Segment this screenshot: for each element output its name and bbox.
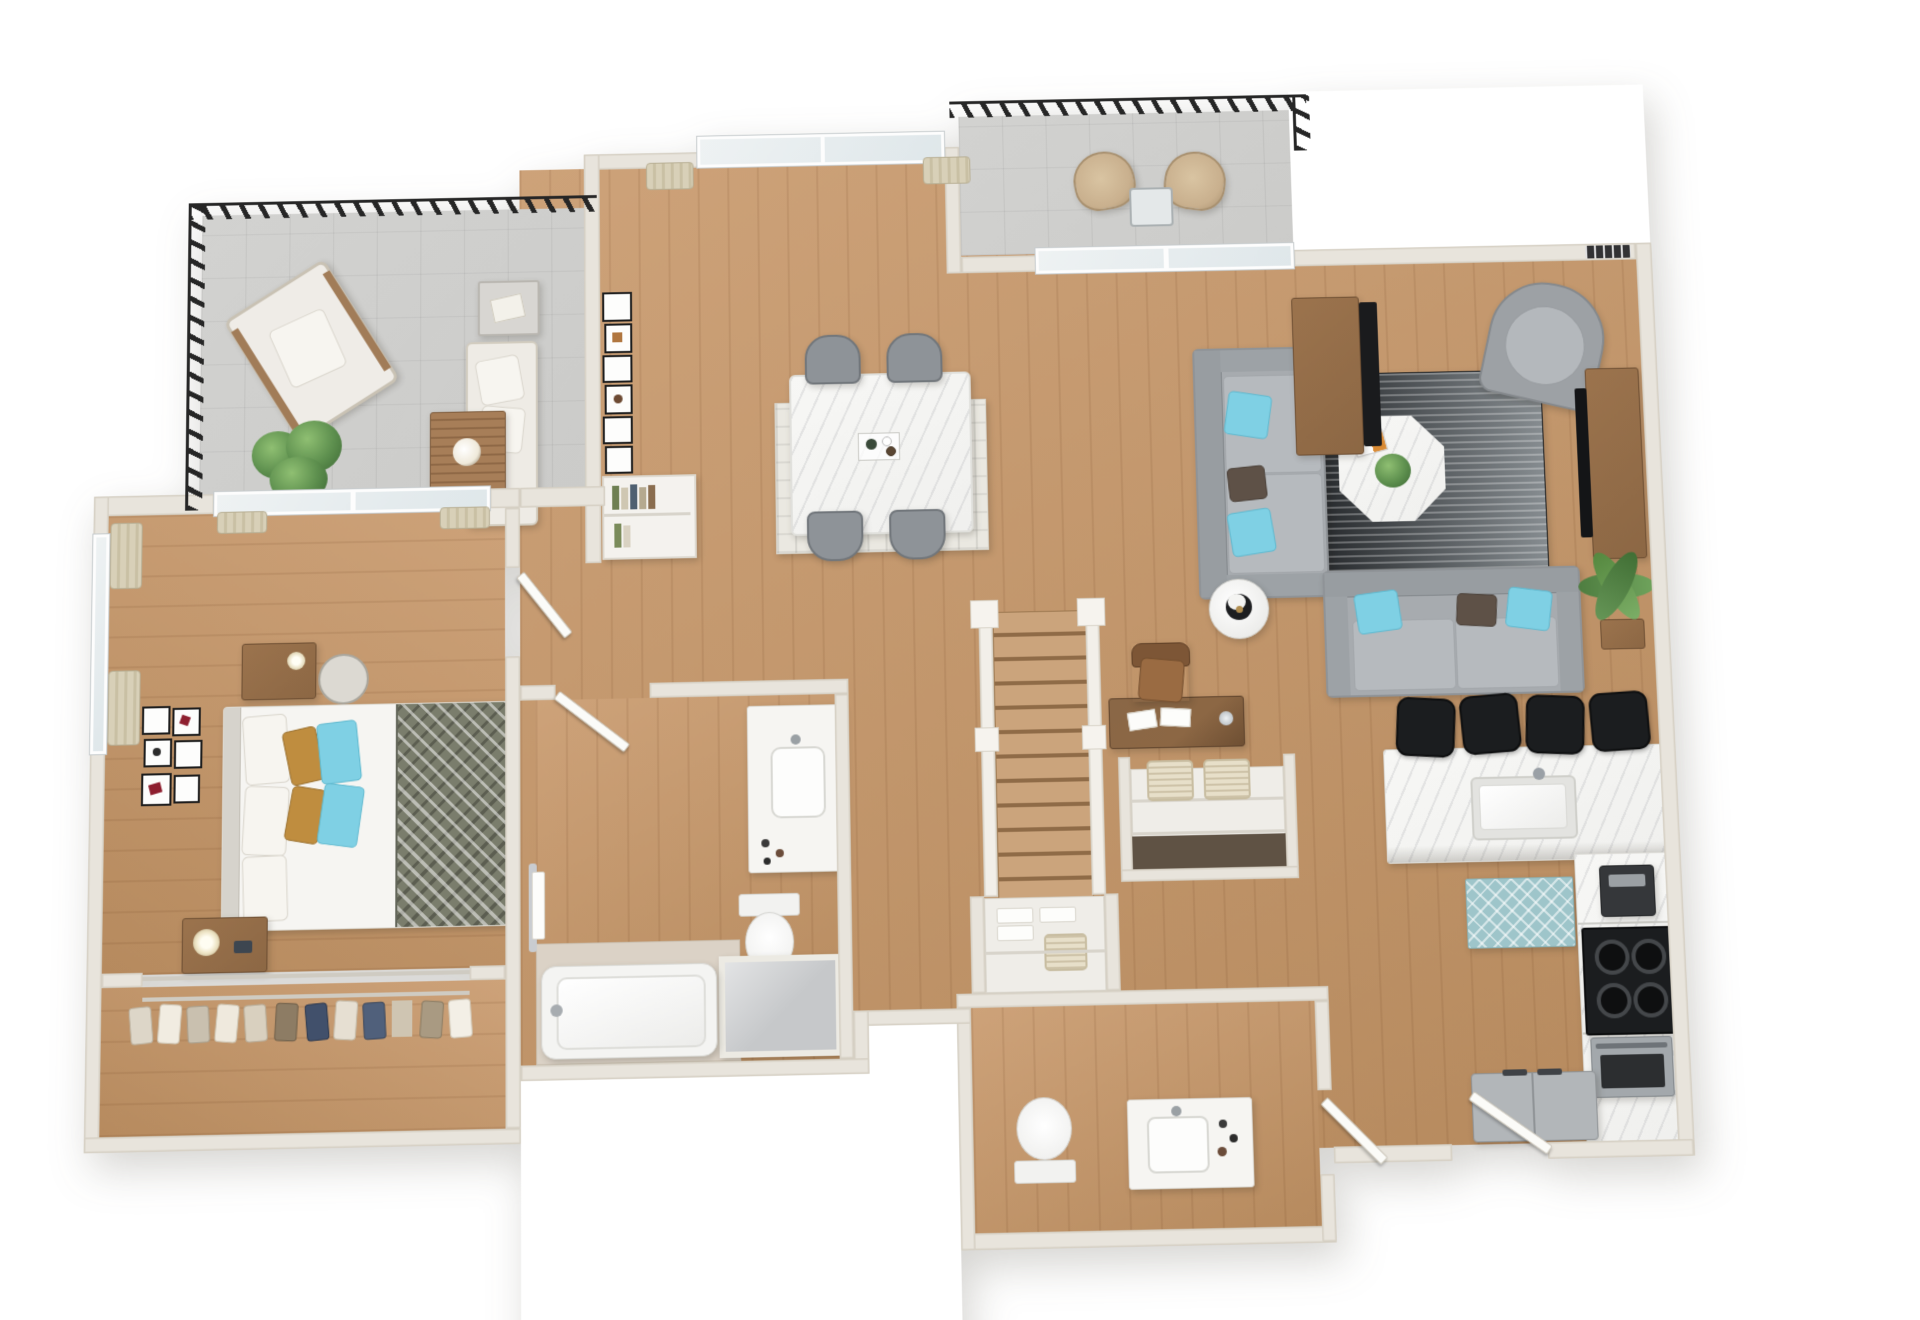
bar-stool bbox=[1458, 692, 1523, 756]
hanging-garment bbox=[419, 1000, 444, 1038]
shower bbox=[719, 954, 843, 1058]
wall-bedroom-right bbox=[505, 656, 521, 1128]
desk-lamp bbox=[287, 652, 305, 671]
shelf-line bbox=[604, 512, 690, 517]
towel-stack bbox=[996, 907, 1033, 923]
linen-closet-interior bbox=[984, 896, 1107, 994]
hanging-garment bbox=[214, 1003, 240, 1043]
dining-chair bbox=[807, 511, 864, 562]
desk-lamp bbox=[1219, 711, 1234, 725]
table-lamp bbox=[193, 929, 220, 956]
bed-pillow bbox=[242, 713, 291, 786]
book bbox=[612, 486, 619, 510]
vanity-accessories bbox=[761, 839, 769, 847]
wall-frame bbox=[172, 707, 201, 736]
teal-pillow bbox=[316, 783, 365, 849]
storage-closet-interior bbox=[1130, 766, 1286, 869]
fridge-door-split bbox=[1531, 1073, 1536, 1140]
bath1-faucet bbox=[791, 734, 801, 744]
book bbox=[630, 484, 637, 509]
tub-basin bbox=[556, 974, 706, 1050]
burner bbox=[1631, 938, 1667, 974]
vanity-accessories bbox=[1219, 1120, 1227, 1129]
wall-frame bbox=[141, 773, 172, 806]
wall-frame bbox=[604, 323, 632, 353]
bath1-sink-basin bbox=[770, 746, 826, 819]
wall-bath1-top bbox=[520, 685, 555, 701]
headboard bbox=[222, 708, 242, 931]
balcony-right-railing bbox=[1292, 94, 1311, 150]
bedroom-gallery-wall bbox=[140, 705, 215, 884]
burner bbox=[1594, 939, 1630, 975]
fridge-handle bbox=[1537, 1068, 1562, 1075]
floor-plan-render bbox=[0, 0, 1920, 1320]
sink-basin bbox=[1479, 783, 1568, 830]
closet-hanging-clothes bbox=[121, 993, 490, 1063]
newel-post bbox=[970, 600, 999, 629]
linen-wall bbox=[970, 896, 986, 993]
hanging-garment bbox=[304, 1002, 329, 1042]
hanging-garment bbox=[157, 1004, 183, 1045]
bathtub bbox=[541, 963, 718, 1060]
balcony-left-railing bbox=[185, 203, 206, 511]
closet-lower-shelf bbox=[1132, 833, 1286, 869]
vanity-accessories bbox=[1217, 1147, 1227, 1157]
vanity-accessories bbox=[764, 857, 771, 864]
staircase-treads bbox=[992, 610, 1094, 899]
book bbox=[648, 485, 655, 509]
outdoor-side-table bbox=[478, 280, 540, 336]
floor-plant bbox=[1571, 546, 1662, 652]
bed-pillow bbox=[242, 855, 288, 923]
brown-pillow bbox=[1226, 465, 1268, 503]
sofa-arm bbox=[1325, 597, 1351, 696]
teal-pillow bbox=[1226, 507, 1277, 557]
wall-bath2-right bbox=[1320, 1174, 1337, 1242]
hanging-garment bbox=[274, 1003, 299, 1042]
coffee-maker bbox=[1599, 864, 1656, 917]
bar-stool bbox=[1525, 694, 1584, 755]
teal-pillow bbox=[1505, 586, 1553, 631]
bath2-vanity bbox=[1127, 1097, 1255, 1190]
linen-wall bbox=[1104, 893, 1121, 990]
exterior-mask bbox=[1288, 85, 1650, 250]
hanging-towel bbox=[532, 871, 545, 939]
hvac-vent-icon bbox=[1585, 245, 1631, 259]
door-mullion bbox=[1163, 249, 1169, 269]
dining-chair bbox=[889, 509, 946, 560]
oven-window bbox=[1600, 1054, 1665, 1089]
burner bbox=[1596, 983, 1632, 1019]
bar-stool bbox=[1588, 690, 1652, 753]
curtain bbox=[107, 670, 140, 746]
fridge-handle bbox=[1502, 1069, 1527, 1076]
cafe-table bbox=[1129, 187, 1174, 227]
wall-kitchen-bottom bbox=[1547, 1139, 1694, 1159]
bed bbox=[221, 701, 511, 932]
hanging-garment bbox=[362, 1001, 386, 1040]
curtain bbox=[217, 511, 267, 534]
plant-stand bbox=[1600, 619, 1646, 650]
wall-bath2-right bbox=[1314, 1000, 1331, 1090]
office-chair-seat bbox=[1138, 657, 1186, 703]
hanging-garment bbox=[392, 1000, 413, 1037]
sofa-pillow bbox=[474, 354, 525, 407]
paper bbox=[1127, 709, 1158, 732]
toilet-bowl bbox=[1016, 1097, 1073, 1161]
exterior-mask bbox=[869, 1024, 963, 1320]
dining-chair bbox=[804, 334, 860, 384]
hanging-garment bbox=[333, 1000, 358, 1041]
apartment-plan bbox=[0, 0, 1920, 1320]
shower-glass bbox=[725, 960, 837, 1052]
teal-pillow bbox=[1353, 589, 1403, 635]
wall-hall-bottom bbox=[853, 1008, 971, 1026]
bed-pillow bbox=[241, 786, 290, 857]
wall-closet-divider bbox=[470, 965, 506, 980]
oven-handle bbox=[1596, 1042, 1668, 1049]
lamp-stem bbox=[1236, 606, 1243, 613]
exterior-mask bbox=[521, 1074, 874, 1320]
wall-frame bbox=[603, 416, 633, 444]
coffee-maker-top bbox=[1608, 874, 1645, 887]
wall-frame bbox=[142, 706, 171, 735]
toilet-tank bbox=[1014, 1159, 1076, 1183]
kitchen-teal-rug bbox=[1465, 876, 1576, 948]
office-desk bbox=[1108, 696, 1245, 750]
door-mullion bbox=[351, 492, 356, 510]
book bbox=[639, 487, 646, 509]
sideboard bbox=[1291, 296, 1364, 455]
book bbox=[490, 293, 526, 323]
loveseat bbox=[1322, 566, 1585, 698]
wall-frame bbox=[174, 740, 203, 769]
oven bbox=[1590, 1036, 1675, 1098]
wall-frame bbox=[143, 738, 172, 767]
curtain bbox=[440, 506, 490, 529]
bath2-faucet bbox=[1171, 1106, 1182, 1117]
book bbox=[621, 488, 628, 510]
dining-window bbox=[697, 132, 944, 168]
woven-basket bbox=[1203, 758, 1251, 800]
wall-kitchen-bottom bbox=[1334, 1144, 1453, 1163]
window-mullion bbox=[821, 137, 825, 162]
chevron-blanket bbox=[395, 702, 511, 927]
curtain bbox=[646, 162, 694, 190]
phone bbox=[234, 941, 252, 954]
hanging-garment bbox=[128, 1006, 153, 1046]
armchair-pillow bbox=[268, 307, 348, 389]
vanity-accessories bbox=[1229, 1134, 1237, 1143]
teal-pillow bbox=[316, 719, 362, 785]
bath2-toilet bbox=[1013, 1097, 1075, 1184]
kitchen-sink bbox=[1470, 775, 1578, 841]
media-console bbox=[1584, 367, 1647, 559]
dining-chair bbox=[886, 333, 943, 383]
woven-basket bbox=[1146, 760, 1194, 802]
newel-post bbox=[1077, 598, 1106, 627]
hanging-garment bbox=[186, 1005, 210, 1044]
table-plant bbox=[1374, 453, 1411, 488]
curtain bbox=[110, 523, 143, 590]
wall-hall-top-stub bbox=[520, 486, 605, 508]
wall-bedroom-right bbox=[505, 508, 520, 568]
newel-post bbox=[975, 727, 1000, 752]
wall-frame bbox=[605, 446, 633, 474]
burner bbox=[1633, 982, 1669, 1018]
bath1-vanity bbox=[747, 704, 846, 873]
wall-closet-divider bbox=[102, 973, 143, 988]
bookshelf bbox=[602, 474, 697, 560]
kitchen-island bbox=[1383, 744, 1668, 864]
gas-range bbox=[1581, 926, 1676, 1036]
wall-bedroom-top bbox=[490, 488, 520, 509]
wall-frame bbox=[605, 384, 633, 414]
bar-stool bbox=[1395, 696, 1455, 758]
cabinet-line bbox=[1578, 921, 1670, 925]
wall-frame bbox=[173, 774, 200, 803]
wall-living-top-a bbox=[961, 255, 1041, 273]
wall-frame bbox=[602, 355, 632, 383]
flower-pot bbox=[453, 438, 481, 466]
newel-post bbox=[1082, 725, 1107, 750]
accent-chair-seat bbox=[1498, 299, 1592, 393]
hanging-garment bbox=[243, 1004, 268, 1043]
office-chair bbox=[1131, 642, 1189, 702]
living-sliding-door bbox=[1035, 243, 1294, 274]
bedroom-desk bbox=[241, 642, 316, 700]
bedroom-left-window bbox=[90, 534, 110, 754]
paper bbox=[1160, 707, 1191, 727]
nightstand bbox=[181, 916, 267, 974]
vanity-accessories bbox=[776, 849, 784, 857]
curtain bbox=[923, 156, 971, 184]
outdoor-coffee-table bbox=[430, 411, 506, 494]
wall-frame bbox=[602, 292, 632, 322]
hanging-garment bbox=[448, 998, 473, 1038]
towel-stack bbox=[997, 925, 1034, 941]
dining-gallery-wall bbox=[602, 292, 633, 470]
book bbox=[623, 525, 630, 547]
bath2-sink-basin bbox=[1147, 1116, 1210, 1174]
teal-pillow bbox=[1223, 391, 1272, 440]
book bbox=[614, 524, 621, 548]
sink-faucet bbox=[1533, 768, 1546, 780]
towel-stack bbox=[1039, 907, 1076, 923]
brown-pillow bbox=[1456, 593, 1497, 627]
